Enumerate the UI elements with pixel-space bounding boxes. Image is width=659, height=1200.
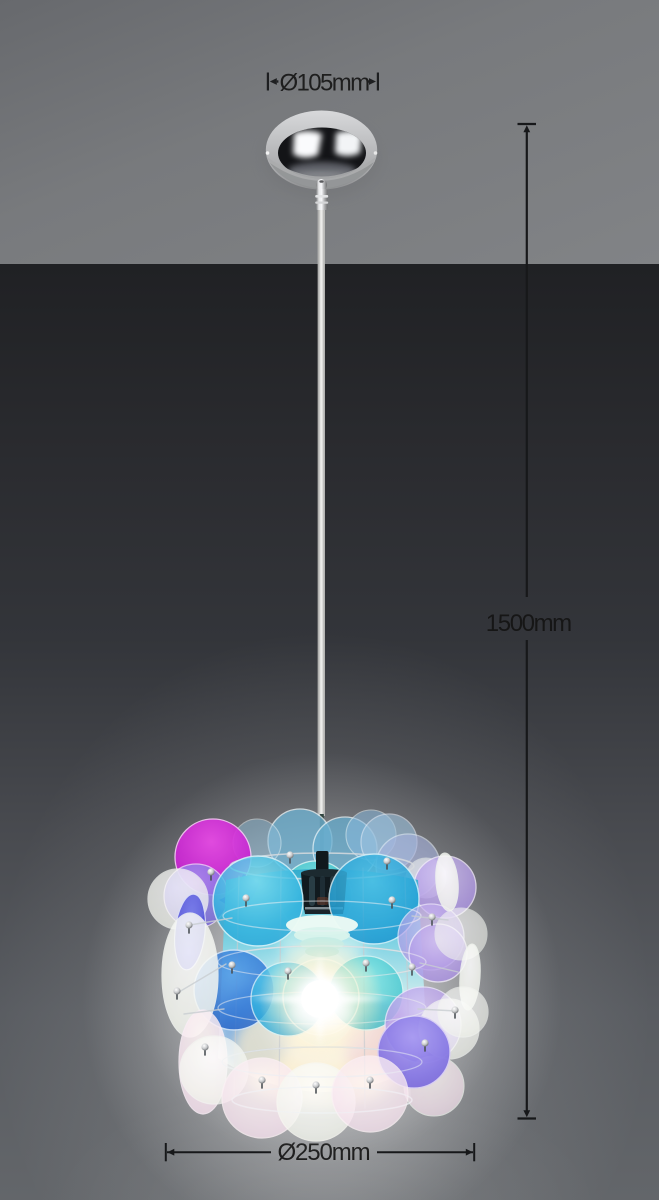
- svg-text:Ø105mm: Ø105mm: [279, 70, 369, 97]
- svg-text:1500mm: 1500mm: [486, 610, 571, 637]
